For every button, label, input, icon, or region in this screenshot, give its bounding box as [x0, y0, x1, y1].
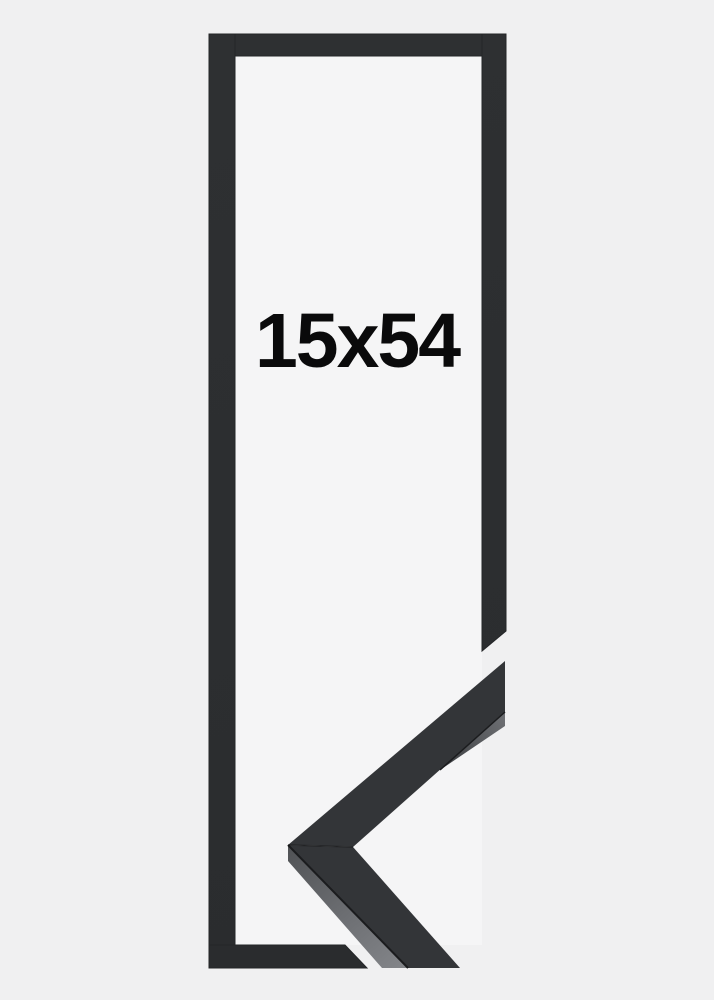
frame-illustration — [0, 0, 714, 1000]
frame-top-border — [209, 34, 506, 56]
frame-bottom-border — [209, 945, 367, 968]
size-label: 15x54 — [0, 303, 714, 380]
frame-left-border — [209, 34, 235, 968]
product-image-canvas: 15x54 — [0, 0, 714, 1000]
